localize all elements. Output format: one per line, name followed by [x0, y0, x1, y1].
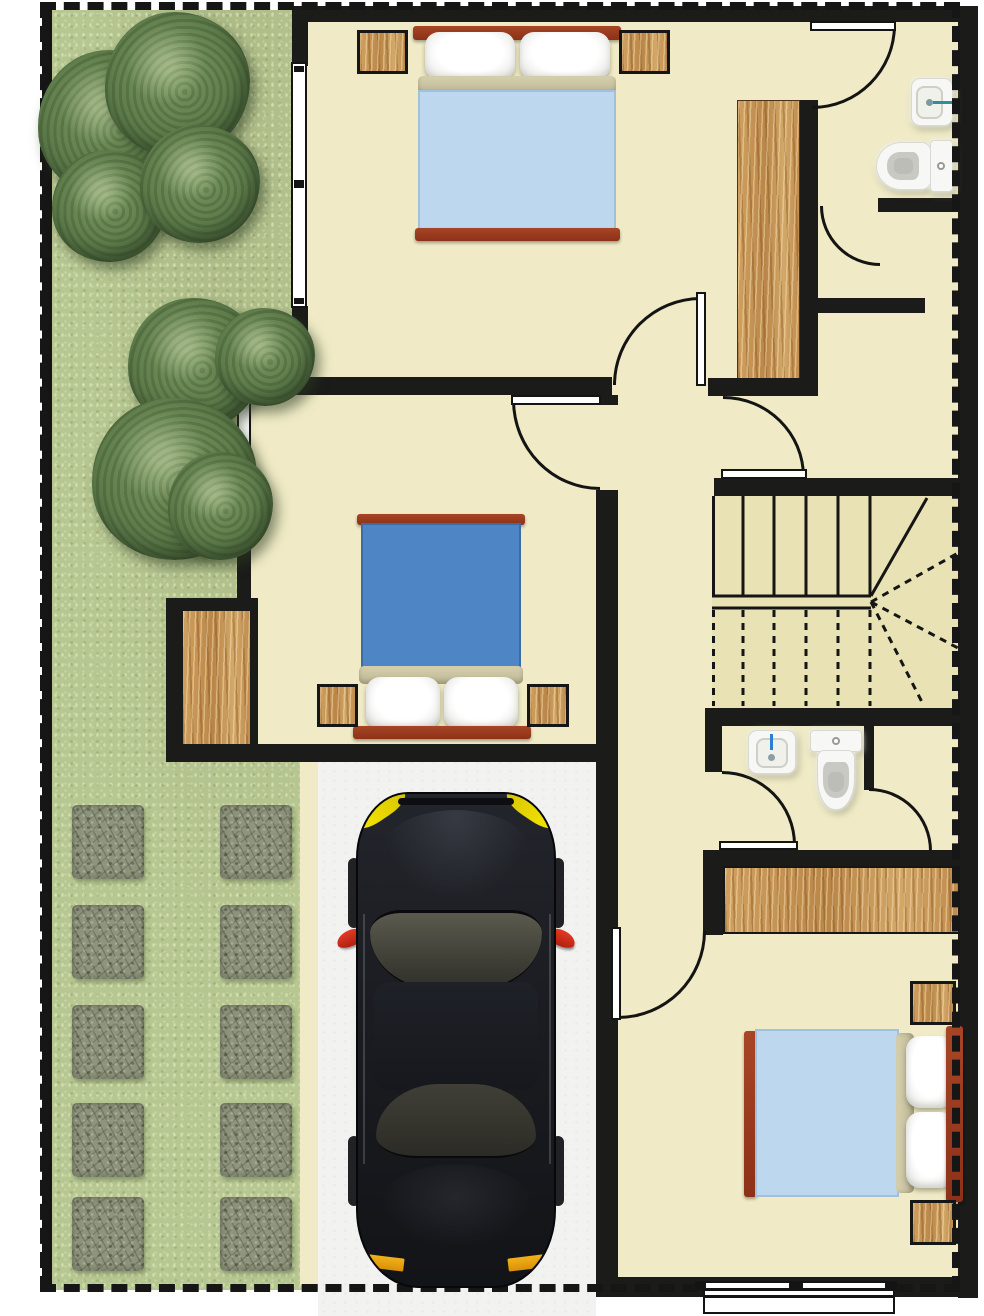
car-side-line-right	[549, 914, 551, 1164]
tree-canopy	[168, 452, 273, 560]
car	[350, 792, 562, 1288]
car-trunk	[380, 1164, 532, 1248]
car-windshield	[370, 910, 542, 990]
car-front-trim	[398, 798, 514, 805]
window-tick	[789, 1283, 803, 1288]
floor-plan	[0, 0, 984, 1316]
car-rear-window	[376, 1084, 536, 1158]
car-roof	[374, 982, 538, 1090]
tree-canopy	[215, 308, 315, 406]
tree-canopy	[140, 125, 260, 243]
window-tick	[697, 1283, 706, 1288]
window-tick	[885, 1283, 895, 1288]
window-bedroom-bottom-sill	[703, 1296, 895, 1314]
car-side-line-left	[363, 914, 365, 1164]
car-body	[356, 792, 556, 1288]
car-hood	[376, 810, 536, 908]
